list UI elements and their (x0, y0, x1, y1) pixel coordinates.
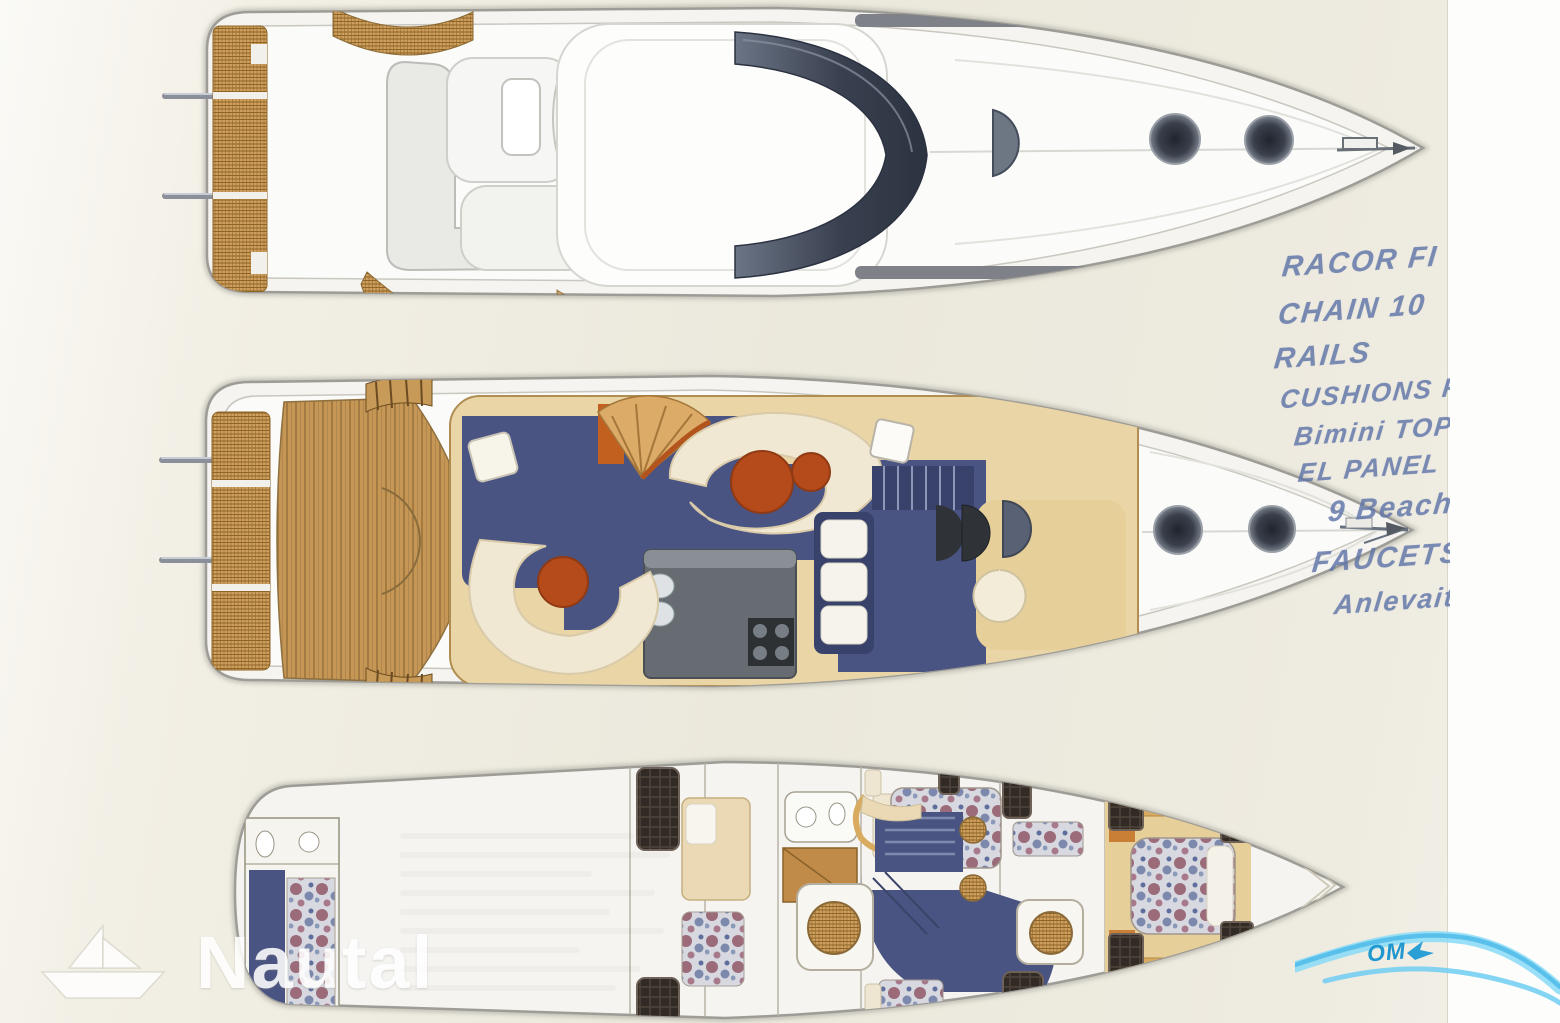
twin-bed-floral (879, 980, 943, 1020)
chain-locker (1221, 922, 1253, 974)
hull-window (1003, 766, 1031, 818)
flybridge-deck-plan (155, 0, 1440, 330)
bulkhead-locker (1109, 934, 1143, 986)
handwritten-note: RACOR FI (1280, 246, 1439, 285)
handwritten-note: FAUCETS (1310, 537, 1450, 581)
handwritten-note: Bimini TOP (1293, 410, 1450, 452)
handwritten-note: EL PANEL 7 (1297, 446, 1450, 489)
corner-logo-watermark: OM (1295, 915, 1560, 1015)
round-table (538, 557, 588, 607)
hull-window (1003, 972, 1043, 1020)
sink (299, 832, 319, 852)
companionway-stairs (872, 466, 974, 510)
wicker-stool (960, 817, 986, 843)
round-table (731, 451, 793, 513)
round-table (792, 453, 830, 491)
pillow (865, 770, 881, 796)
door-panel (869, 418, 914, 463)
handwritten-note: CUSHIONS F (1279, 372, 1450, 416)
paper-boat-icon (28, 922, 178, 1004)
scanned-yacht-deckplan-page: RACOR FI CHAIN 10 RAILS CUSHIONS F Bimin… (0, 0, 1560, 1023)
settee-bench (814, 512, 874, 654)
wicker-stool (960, 875, 986, 901)
pillows (1207, 846, 1233, 926)
bow-hatch (1245, 116, 1293, 164)
swim-platform-wicker (212, 412, 270, 670)
toilet (256, 831, 274, 857)
wicker-grate (808, 902, 860, 954)
handwritten-note: CHAIN 10 (1276, 289, 1427, 333)
handwritten-note: RAILS (1272, 336, 1372, 376)
galley (644, 550, 796, 678)
pillow (865, 984, 881, 1012)
fish-glyph (1407, 941, 1434, 960)
bow-hatch (1154, 506, 1202, 554)
wicker-grate (1030, 912, 1072, 954)
stove (748, 618, 794, 666)
handwritten-note: 9 Beach (1326, 487, 1450, 529)
bleed-through-text (400, 820, 700, 1020)
twin-bed-floral (1013, 822, 1083, 856)
master-cabin (1105, 774, 1253, 996)
nautal-brand-text: Nautal (196, 926, 434, 1000)
swim-platform-wicker (213, 26, 267, 292)
nautal-watermark: Nautal (28, 922, 434, 1004)
handwritten-notes: RACOR FI CHAIN 10 RAILS CUSHIONS F Bimin… (1272, 246, 1450, 666)
toilet (829, 803, 845, 825)
helm-seat (974, 570, 1026, 622)
wave-swoosh-icon (1295, 915, 1560, 1015)
handwritten-note: Anlevait (1333, 582, 1450, 622)
sink (796, 807, 816, 827)
main-deck-plan (150, 360, 1440, 720)
corner-logo-partial-text: OM (1366, 937, 1407, 967)
salon (450, 396, 1138, 686)
bow-hatch (1150, 114, 1200, 164)
